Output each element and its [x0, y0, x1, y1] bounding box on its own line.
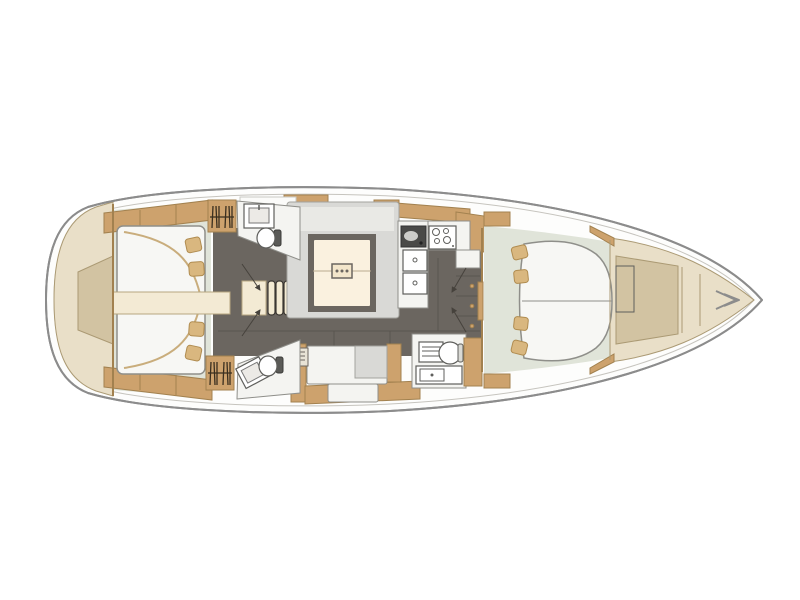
- fwd-cabin-door: [478, 282, 483, 320]
- centerline-divider: [113, 292, 230, 314]
- bottle-dot: [346, 270, 349, 273]
- nav-side-cabinet: [464, 338, 482, 386]
- bottle-dot: [341, 270, 344, 273]
- fwd-cabinet: [484, 374, 510, 388]
- stern-locker: [78, 256, 113, 344]
- dresser-knob: [470, 324, 474, 328]
- berth-pillow: [513, 269, 528, 283]
- hanging-locker-port: [206, 356, 234, 390]
- yacht-floor-plan-canvas: [0, 0, 800, 600]
- toilet: [259, 356, 277, 376]
- galley-sink: [401, 226, 426, 247]
- berth-pillow: [185, 345, 203, 362]
- saloon-sofa-cushion: [292, 207, 394, 231]
- lounge-sofa-corner: [355, 346, 387, 378]
- berth-pillow: [513, 316, 528, 330]
- berth-pillow: [185, 236, 203, 253]
- galley-counter-fwd: [456, 250, 480, 268]
- bottle-dot: [336, 270, 339, 273]
- yacht-floor-plan: [0, 0, 800, 600]
- fwd-cabinet: [484, 212, 510, 226]
- toilet: [257, 228, 275, 248]
- nav-drawers: [416, 366, 462, 384]
- companionway-landing: [242, 281, 266, 315]
- berth-pillow: [189, 322, 205, 337]
- lounge-ottoman: [328, 384, 378, 402]
- berth-pillow: [189, 261, 205, 276]
- nav-chair: [439, 342, 463, 364]
- hanging-locker-starboard: [208, 200, 236, 232]
- dresser-knob: [470, 284, 474, 288]
- galley-stove: [429, 226, 456, 249]
- dresser-knob: [470, 304, 474, 308]
- anchor-locker: [616, 256, 678, 344]
- lower-sofa-end-cabinet: [387, 344, 401, 382]
